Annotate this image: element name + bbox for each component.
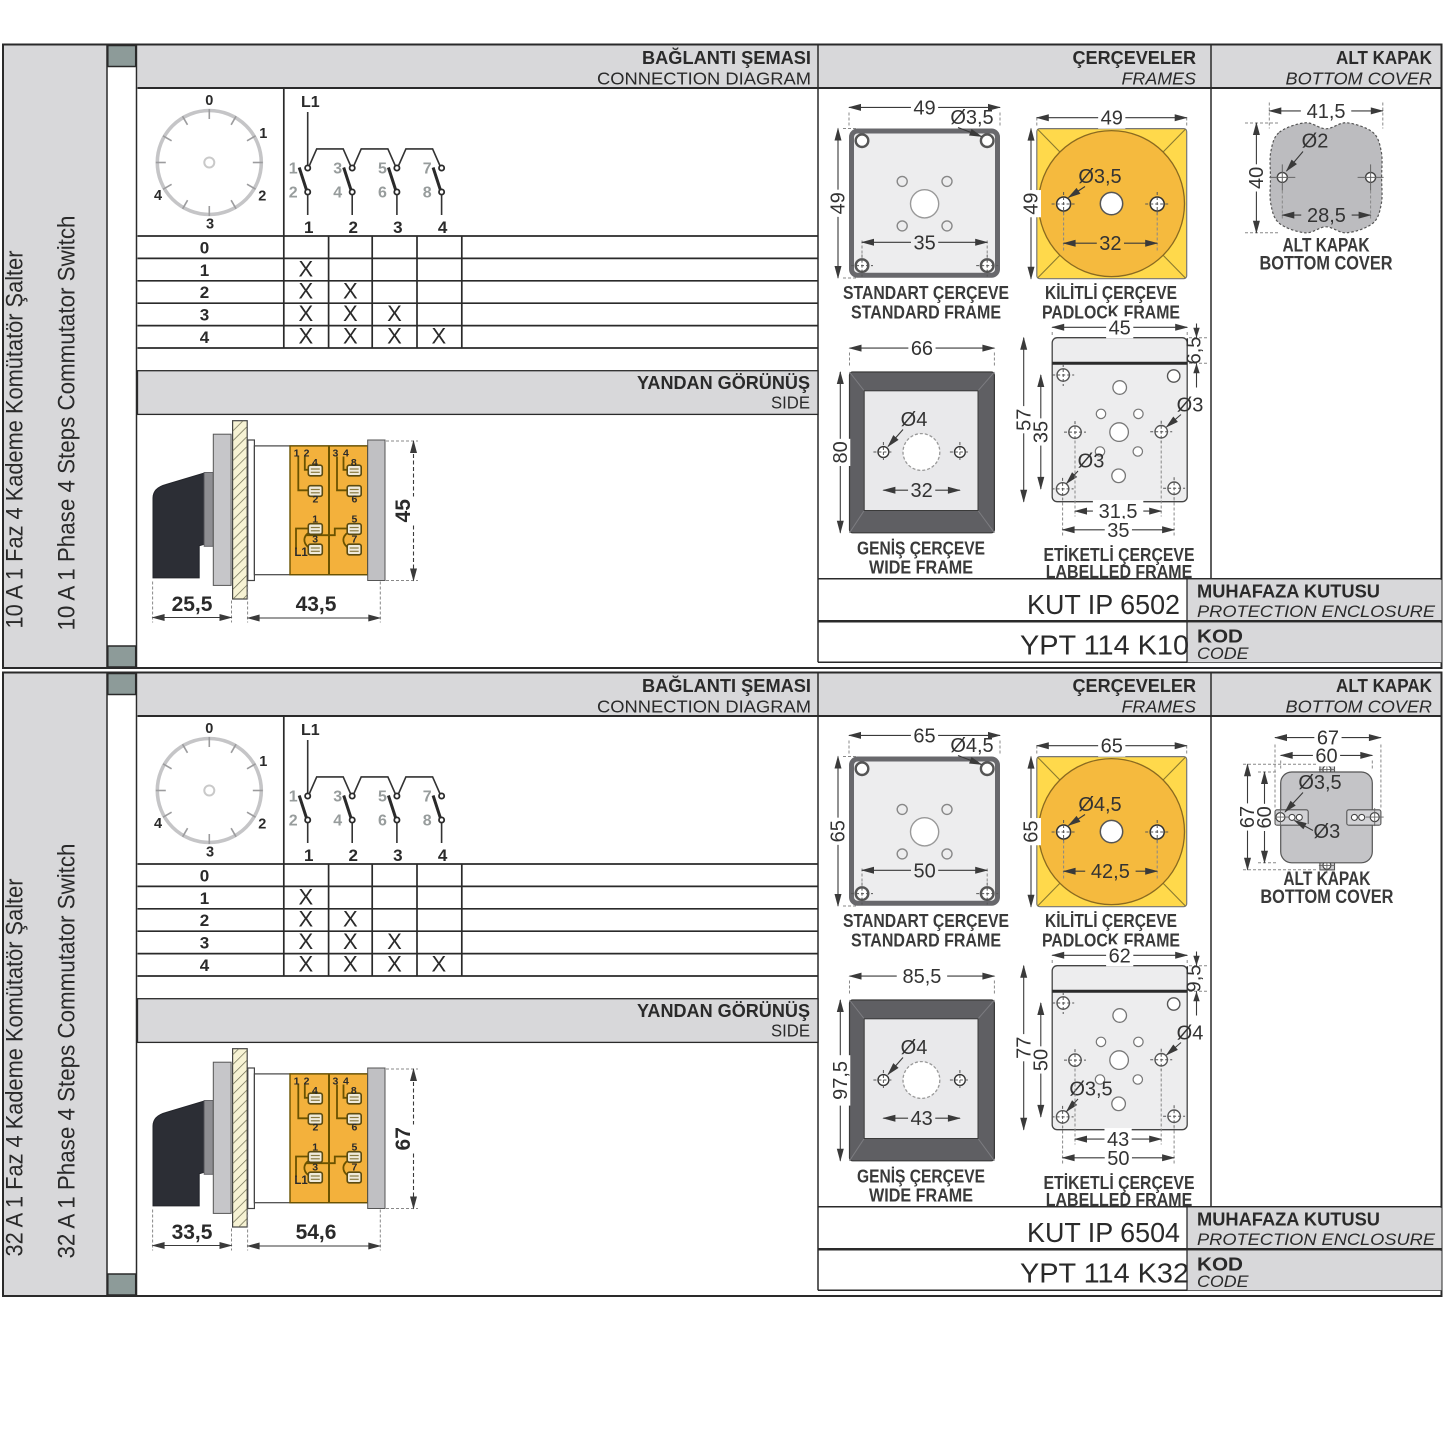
svg-text:PROTECTION ENCLOSURE: PROTECTION ENCLOSURE [1197,602,1436,621]
svg-text:9,5: 9,5 [1184,965,1206,993]
svg-text:80: 80 [830,441,852,463]
svg-text:X: X [298,907,313,932]
svg-text:X: X [343,324,358,349]
svg-text:SIDE: SIDE [771,1021,810,1041]
svg-text:32: 32 [911,480,933,502]
svg-text:1: 1 [259,126,267,142]
svg-text:28,5: 28,5 [1307,205,1346,227]
svg-text:50: 50 [913,860,935,882]
svg-text:1: 1 [294,448,300,460]
svg-text:CODE: CODE [1197,1272,1249,1291]
svg-text:Ø3: Ø3 [1177,395,1204,417]
svg-text:67: 67 [392,1127,415,1150]
svg-text:4: 4 [438,218,448,237]
svg-text:3: 3 [333,789,342,806]
svg-text:X: X [298,929,313,954]
svg-text:X: X [387,301,402,326]
svg-text:STANDART ÇERÇEVE: STANDART ÇERÇEVE [843,283,1009,303]
svg-text:X: X [387,952,402,977]
svg-text:10 A 1 Phase 4 Steps Commutato: 10 A 1 Phase 4 Steps Commutator Switch [53,216,80,631]
svg-text:5: 5 [351,514,357,526]
svg-text:0: 0 [200,238,209,257]
svg-text:4: 4 [312,457,318,469]
svg-text:4: 4 [333,813,342,830]
svg-text:50: 50 [1107,1148,1129,1170]
svg-text:32 A 1 Faz 4 Kademe Komütatör: 32 A 1 Faz 4 Kademe Komütatör Şalter [1,879,28,1257]
svg-text:32 A 1 Phase 4 Steps Commutato: 32 A 1 Phase 4 Steps Commutator Switch [53,844,80,1259]
svg-text:BOTTOM COVER: BOTTOM COVER [1260,254,1393,275]
svg-text:L1: L1 [301,94,320,111]
svg-text:2: 2 [258,817,266,833]
svg-text:Ø3,5: Ø3,5 [1069,1079,1112,1101]
svg-text:GENİŞ ÇERÇEVE: GENİŞ ÇERÇEVE [857,539,985,559]
svg-text:3: 3 [312,534,318,546]
svg-text:1: 1 [312,514,318,526]
svg-text:FRAMES: FRAMES [1122,697,1197,717]
svg-text:STANDARD FRAME: STANDARD FRAME [851,303,1001,323]
svg-text:32: 32 [1099,233,1121,255]
svg-text:65: 65 [1101,736,1123,758]
svg-text:25,5: 25,5 [172,593,213,616]
svg-text:2: 2 [258,189,266,205]
svg-text:CODE: CODE [1197,644,1249,663]
svg-text:X: X [343,929,358,954]
svg-text:0: 0 [200,866,209,885]
svg-text:KUT IP 6502: KUT IP 6502 [1027,589,1180,620]
svg-text:2: 2 [304,1076,310,1088]
svg-text:3: 3 [200,306,209,325]
svg-text:4: 4 [312,1085,318,1097]
svg-text:Ø3,5: Ø3,5 [1298,772,1341,794]
svg-text:3: 3 [332,1076,338,1088]
svg-text:4: 4 [154,188,162,204]
svg-text:2: 2 [200,911,209,930]
svg-text:4: 4 [200,328,210,347]
svg-text:Ø4,5: Ø4,5 [1078,794,1121,816]
svg-text:43,5: 43,5 [296,593,337,616]
svg-text:CONNECTION DIAGRAM: CONNECTION DIAGRAM [597,69,811,89]
svg-text:5: 5 [351,1142,357,1154]
svg-text:STANDART ÇERÇEVE: STANDART ÇERÇEVE [843,911,1009,931]
svg-text:6: 6 [351,1122,357,1134]
svg-text:YANDAN GÖRÜNÜŞ: YANDAN GÖRÜNÜŞ [637,1001,810,1021]
svg-text:GENİŞ ÇERÇEVE: GENİŞ ÇERÇEVE [857,1167,985,1187]
svg-text:Ø4: Ø4 [1177,1023,1204,1045]
svg-text:ÇERÇEVELER: ÇERÇEVELER [1073,48,1197,68]
svg-text:BOTTOM COVER: BOTTOM COVER [1286,69,1433,89]
svg-text:X: X [298,301,313,326]
svg-text:45: 45 [1109,317,1131,339]
svg-text:Ø4: Ø4 [901,1037,928,1059]
svg-text:MUHAFAZA KUTUSU: MUHAFAZA KUTUSU [1197,582,1380,602]
svg-text:35: 35 [1107,520,1129,542]
svg-text:L1: L1 [301,722,320,739]
svg-text:Ø3,5: Ø3,5 [950,107,993,129]
svg-text:49: 49 [1021,193,1043,215]
svg-text:X: X [432,952,447,977]
svg-text:ÇERÇEVELER: ÇERÇEVELER [1073,676,1197,696]
svg-text:54,6: 54,6 [296,1221,337,1244]
svg-text:X: X [298,256,313,281]
svg-text:42,5: 42,5 [1091,861,1130,883]
svg-text:6: 6 [378,813,387,830]
svg-text:X: X [298,324,313,349]
svg-text:X: X [387,324,402,349]
svg-text:2: 2 [289,185,298,202]
svg-text:Ø3,5: Ø3,5 [1078,166,1121,188]
svg-text:ALT KAPAK: ALT KAPAK [1336,676,1432,696]
svg-text:41,5: 41,5 [1307,101,1346,123]
svg-text:7: 7 [351,1162,357,1174]
svg-text:3: 3 [332,448,338,460]
svg-text:4: 4 [154,816,162,832]
svg-text:PROTECTION ENCLOSURE: PROTECTION ENCLOSURE [1197,1230,1436,1249]
svg-text:KUT IP 6504: KUT IP 6504 [1027,1217,1180,1248]
svg-text:6: 6 [378,185,387,202]
svg-text:X: X [387,929,402,954]
svg-text:X: X [432,324,447,349]
svg-text:2: 2 [289,813,298,830]
svg-text:BAĞLANTI ŞEMASI: BAĞLANTI ŞEMASI [642,675,811,696]
svg-text:6,5: 6,5 [1184,337,1206,365]
svg-text:2: 2 [348,218,357,237]
svg-text:6: 6 [351,494,357,506]
svg-text:STANDARD FRAME: STANDARD FRAME [851,931,1001,951]
svg-text:5: 5 [378,161,387,178]
svg-text:SIDE: SIDE [771,393,810,413]
svg-text:10 A 1 Faz 4 Kademe Komütatör: 10 A 1 Faz 4 Kademe Komütatör Şalter [1,251,28,629]
svg-text:2: 2 [312,494,318,506]
svg-text:35: 35 [1030,421,1052,443]
svg-text:CONNECTION DIAGRAM: CONNECTION DIAGRAM [597,697,811,717]
svg-text:3: 3 [333,161,342,178]
svg-text:2: 2 [312,1122,318,1134]
svg-text:Ø3: Ø3 [1314,821,1341,843]
svg-text:YANDAN GÖRÜNÜŞ: YANDAN GÖRÜNÜŞ [637,373,810,393]
svg-text:1: 1 [304,846,313,865]
svg-text:ALT KAPAK: ALT KAPAK [1336,48,1432,68]
svg-text:4: 4 [333,185,342,202]
svg-text:5: 5 [378,789,387,806]
svg-text:3: 3 [206,845,214,861]
svg-text:Ø2: Ø2 [1302,131,1329,153]
svg-text:WIDE FRAME: WIDE FRAME [869,558,973,578]
svg-text:49: 49 [913,97,935,119]
svg-text:1: 1 [294,1076,300,1088]
svg-text:60: 60 [1254,806,1276,828]
svg-text:65: 65 [1021,821,1043,843]
svg-text:4: 4 [200,956,210,975]
svg-text:X: X [343,279,358,304]
svg-text:1: 1 [200,889,209,908]
svg-text:49: 49 [828,192,850,214]
svg-text:33,5: 33,5 [172,1221,213,1244]
svg-text:4: 4 [343,448,349,460]
svg-text:8: 8 [423,185,432,202]
svg-text:50: 50 [1030,1049,1052,1071]
svg-text:4: 4 [343,1076,349,1088]
svg-text:7: 7 [351,534,357,546]
svg-text:43: 43 [911,1108,933,1130]
svg-text:Ø4: Ø4 [901,409,928,431]
svg-text:3: 3 [206,217,214,233]
svg-text:49: 49 [1101,108,1123,130]
svg-text:L1: L1 [294,547,308,559]
svg-text:7: 7 [423,161,432,178]
svg-text:BAĞLANTI ŞEMASI: BAĞLANTI ŞEMASI [642,47,811,68]
svg-text:1: 1 [304,218,313,237]
svg-text:X: X [298,279,313,304]
svg-text:X: X [298,952,313,977]
svg-text:KİLİTLİ ÇERÇEVE: KİLİTLİ ÇERÇEVE [1045,283,1177,303]
svg-text:BOTTOM COVER: BOTTOM COVER [1260,887,1393,908]
svg-text:1: 1 [289,161,298,178]
svg-text:X: X [343,301,358,326]
svg-text:35: 35 [913,232,935,254]
svg-text:KİLİTLİ ÇERÇEVE: KİLİTLİ ÇERÇEVE [1045,911,1177,931]
svg-text:X: X [343,907,358,932]
svg-text:45: 45 [392,499,415,523]
svg-text:7: 7 [423,789,432,806]
svg-text:MUHAFAZA KUTUSU: MUHAFAZA KUTUSU [1197,1210,1380,1230]
svg-text:65: 65 [828,820,850,842]
svg-text:97,5: 97,5 [830,1061,852,1100]
svg-text:Ø4,5: Ø4,5 [950,735,993,757]
svg-text:2: 2 [304,448,310,460]
svg-text:3: 3 [200,934,209,953]
svg-text:3: 3 [393,218,402,237]
svg-text:85,5: 85,5 [902,966,941,988]
svg-text:Ø3: Ø3 [1078,451,1105,473]
svg-text:1: 1 [259,754,267,770]
svg-text:1: 1 [289,789,298,806]
svg-text:1: 1 [312,1142,318,1154]
svg-text:8: 8 [351,457,357,469]
svg-text:FRAMES: FRAMES [1122,69,1197,89]
svg-text:62: 62 [1109,945,1131,967]
svg-text:0: 0 [205,721,213,737]
svg-text:YPT 114 K10: YPT 114 K10 [1020,630,1189,661]
svg-text:3: 3 [393,846,402,865]
svg-text:3: 3 [312,1162,318,1174]
svg-text:8: 8 [351,1085,357,1097]
svg-text:66: 66 [911,338,933,360]
svg-text:YPT 114 K32: YPT 114 K32 [1020,1258,1189,1289]
svg-text:4: 4 [438,846,448,865]
svg-text:WIDE FRAME: WIDE FRAME [869,1186,973,1206]
svg-text:0: 0 [205,93,213,109]
svg-text:2: 2 [348,846,357,865]
svg-text:65: 65 [913,725,935,747]
svg-text:8: 8 [423,813,432,830]
svg-text:BOTTOM COVER: BOTTOM COVER [1286,697,1433,717]
svg-text:1: 1 [200,261,209,280]
svg-text:X: X [298,884,313,909]
svg-text:40: 40 [1246,167,1268,189]
svg-text:X: X [343,952,358,977]
svg-text:L1: L1 [294,1175,308,1187]
svg-text:2: 2 [200,283,209,302]
svg-text:60: 60 [1315,745,1337,767]
